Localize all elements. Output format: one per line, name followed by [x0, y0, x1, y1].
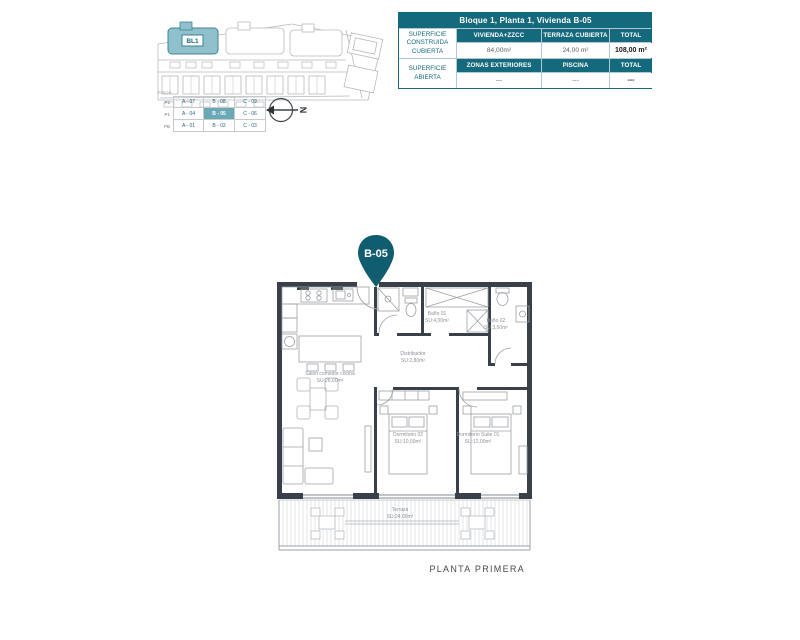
key-table: P2 A - 07 B - 08 C - 09 P1 A - 04 B - 05… [157, 96, 266, 132]
room-label-dormitorio2: Dormitorio 02 SU:10,00m² [393, 432, 423, 445]
walls [277, 282, 532, 499]
label-line: ABIERTA [409, 74, 447, 82]
surface-value: 84,00m² [457, 43, 541, 58]
room-label-bano2: Baño 02 SU:3,50m² [484, 318, 508, 331]
wardrobe [426, 288, 488, 332]
col-header: TOTAL [610, 59, 652, 72]
room-label-terraza: Terraza SU:24,00m² [387, 507, 414, 520]
room-name: Baño 01 [425, 311, 449, 318]
kitchen-fixtures [282, 287, 369, 371]
block-label: BL1 [186, 38, 199, 45]
room-label-distribuidor: Distribuidor SU:2,80m² [400, 351, 425, 364]
unit-cell: B - 08 [204, 96, 235, 108]
row-group-label: SUPERFICIE ABIERTA [399, 59, 456, 88]
unit-cell: A - 01 [173, 120, 204, 132]
pin-label: B-05 [364, 248, 388, 260]
plan-caption: PLANTA PRIMERA [400, 564, 525, 574]
surface-total: --- [610, 73, 652, 88]
label-line: SUPERFICIE [407, 31, 449, 39]
row-group-label: SUPERFICIE CONSTRUIDA CUBIERTA [399, 29, 456, 58]
floor-label: PB [157, 120, 173, 132]
bath2-fixtures [496, 288, 529, 322]
unit-cell: A - 04 [173, 108, 204, 120]
surface-info-table: Bloque 1, Planta 1, Vivienda B-05 SUPERF… [398, 12, 652, 89]
plan-sheet: { "colors": { "teal": "#15697d", "teal_d… [0, 0, 800, 640]
col-header: TOTAL [610, 29, 652, 42]
room-label-suite1: Dormitorio Suite 01 SU:12,00m² [457, 432, 500, 445]
unit-cell: B - 02 [204, 120, 235, 132]
room-area: SU:26,00m² [305, 378, 354, 385]
room-name: Dormitorio Suite 01 [457, 432, 500, 439]
north-compass-icon: N [262, 94, 312, 128]
floor-label: P2 [157, 96, 173, 108]
room-area: SU:3,50m² [484, 325, 508, 332]
room-area: SU:4,00m² [425, 318, 449, 325]
col-header: TERRAZA CUBIERTA [542, 29, 609, 42]
room-name: Salón comedor cocina [305, 371, 354, 378]
label-line: CUBIERTA [407, 48, 449, 56]
unit-cell: C - 03 [235, 120, 266, 132]
unit-cell: C - 09 [235, 96, 266, 108]
compass-north-label: N [298, 107, 308, 114]
room-label-salon: Salón comedor cocina SU:26,00m² [305, 371, 354, 384]
highlighted-block-notch [180, 22, 192, 30]
surface-total: 108,00 m² [610, 43, 652, 58]
room-area: SU:2,80m² [400, 358, 425, 365]
dining-set [297, 378, 338, 419]
label-line: CONSTRUIDA [407, 39, 449, 47]
room-name: Dormitorio 02 [393, 432, 423, 439]
room-area: SU:24,00m² [387, 514, 414, 521]
col-header: ZONAS EXTERIORES [457, 59, 541, 72]
unit-cell: C - 06 [235, 108, 266, 120]
room-name: Baño 02 [484, 318, 508, 325]
room-name: Distribuidor [400, 351, 425, 358]
col-header: PISCINA [542, 59, 609, 72]
surface-value: 24,00 m² [542, 43, 609, 58]
room-area: SU:12,00m² [457, 439, 500, 446]
col-header: VIVIENDA+ZZCC [457, 29, 541, 42]
surface-value: --- [542, 73, 609, 88]
key-table-title: PISOS [158, 90, 172, 95]
unit-cell-highlighted: B - 05 [204, 108, 235, 120]
bath1-fixtures [378, 288, 418, 317]
info-table-title: Bloque 1, Planta 1, Vivienda B-05 [399, 13, 652, 28]
room-area: SU:10,00m² [393, 439, 423, 446]
room-label-bano1: Baño 01 SU:4,00m² [425, 311, 449, 324]
label-line: SUPERFICIE [409, 65, 447, 73]
floor-label: P1 [157, 108, 173, 120]
surface-value: --- [457, 73, 541, 88]
unit-cell: A - 07 [173, 96, 204, 108]
tv-unit [365, 426, 371, 472]
sofa [283, 426, 371, 484]
glass-doors [303, 495, 519, 498]
